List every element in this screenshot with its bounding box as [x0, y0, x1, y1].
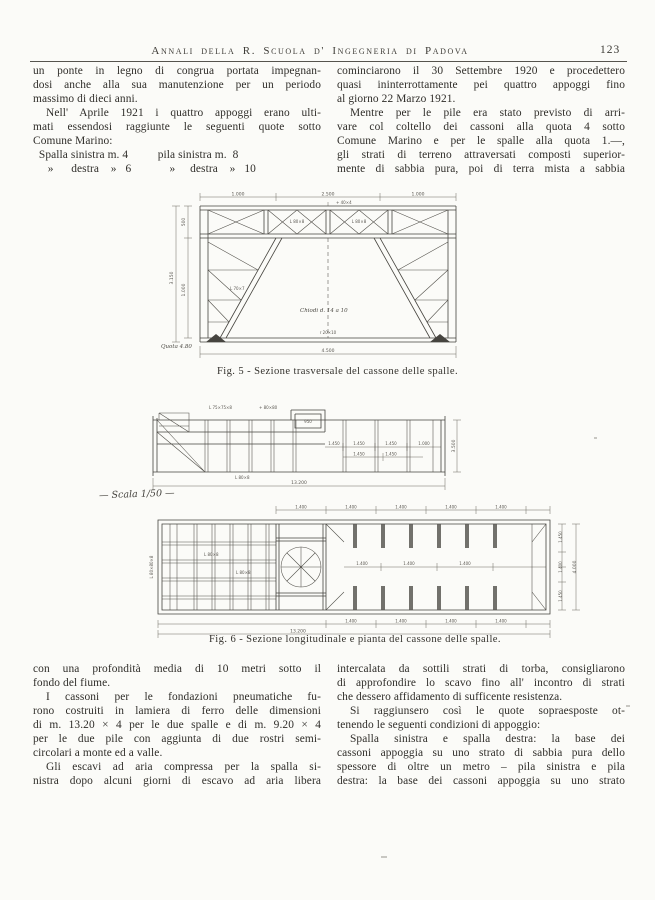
- text-line: vare col coltello dei cassoni alla quota…: [337, 120, 625, 134]
- text-line: mati essendosi raggiunte le seguenti quo…: [33, 120, 321, 134]
- page-number: 123: [600, 44, 630, 56]
- scan-artifact: [626, 705, 630, 707]
- dim-label: 4.500: [322, 348, 335, 354]
- text-line: di m. 13.20 × 4 per le due spalle e di m…: [33, 718, 321, 732]
- text-line: quasi ininterrottamente pei quattro appo…: [337, 78, 625, 92]
- rivet-note: Chiodi d. 14 a 10: [300, 308, 348, 314]
- fig6-section-drawing: 13.200 3.500 1.450 1.450 1.450 1.000 1.4…: [143, 398, 483, 498]
- text-line: al giorno 22 Marzo 1921.: [337, 92, 625, 106]
- dim-label: 3.150: [169, 271, 175, 284]
- text-line: Mentre per le pile era stato previsto di…: [337, 106, 625, 120]
- dim-label: 1.400: [295, 505, 307, 510]
- text-line: tenendo le seguenti condizioni di appogg…: [337, 718, 625, 732]
- text-line: gli strati di terreno attraversati compo…: [337, 148, 625, 162]
- column-top-left: un ponte in legno di congrua portata imp…: [33, 64, 321, 176]
- detail-label: L 80×8: [235, 475, 250, 480]
- text-line: spessore di oltre un metro – pila sinist…: [337, 760, 625, 774]
- dim-label: 4.000: [572, 560, 578, 573]
- text-line: dosi anche alla sua manutenzione per un …: [33, 78, 321, 92]
- text-line: con una profondità media di 10 metri sot…: [33, 662, 321, 676]
- fig6-plan-dimension-lines: [158, 506, 580, 638]
- header-rule: [30, 61, 627, 62]
- dim-label: 1.450: [353, 452, 365, 457]
- text-line: Comune Marino:: [33, 134, 321, 148]
- text-columns-top: un ponte in legno di congrua portata imp…: [33, 64, 625, 176]
- scale-note: — Scala 1/50 —: [99, 488, 175, 502]
- dim-label: 1.000: [232, 192, 245, 198]
- text-line: I cassoni per le fondazioni pneumatiche …: [33, 690, 321, 704]
- dim-label: 1.400: [403, 561, 415, 566]
- text-line: che dessero affidamento di sufficente re…: [337, 690, 625, 704]
- dim-label: 1.400: [445, 619, 457, 624]
- text-line: di approfondire lo scavo fino all' incon…: [337, 676, 625, 690]
- detail-label: L 70×7: [230, 286, 245, 291]
- text-line: nistra dopo alcuni giorni di escavo ad a…: [33, 774, 321, 788]
- column-bottom-right: intercalata da sottili strati di torba, …: [337, 662, 625, 788]
- text-line: per le due pile con aggiunta di due rost…: [33, 732, 321, 746]
- text-line: massimo di dieci anni.: [33, 92, 321, 106]
- dim-label: 1.400: [558, 561, 563, 573]
- detail-label: + 40×4: [336, 200, 352, 205]
- column-top-right: cominciarono il 30 Settembre 1920 e proc…: [337, 64, 625, 176]
- text-line: Gli escavi ad aria compressa per la spal…: [33, 760, 321, 774]
- text-line: Spalla sinistra e spalla destra: la base…: [337, 732, 625, 746]
- dim-label: 13.200: [291, 480, 307, 486]
- dim-label: 1.000: [412, 192, 425, 198]
- fig6-section-structure: [153, 410, 445, 476]
- dim-label: 2.500: [322, 192, 335, 198]
- fig5-dimension-labels: 1.000 2.500 1.000 3.150 500 1.000 4.500 …: [161, 192, 425, 355]
- detail-label: L 80×8: [352, 219, 367, 224]
- text-line: Si raggiunsero così le quote sopraespost…: [337, 704, 625, 718]
- dim-label: 1.450: [385, 452, 397, 457]
- text-line: circolari a monte ed a valle.: [33, 746, 321, 760]
- dim-label: 1.400: [495, 505, 507, 510]
- detail-label: L 80×8: [290, 219, 305, 224]
- detail-label: L 75×75×8: [209, 405, 232, 410]
- scan-artifact: [594, 437, 597, 439]
- text-line: un ponte in legno di congrua portata imp…: [33, 64, 321, 78]
- dim-label: 1.450: [328, 441, 340, 446]
- detail-label: r 20×10: [320, 330, 337, 335]
- dim-label: 1.400: [395, 505, 407, 510]
- dim-label: 1.450: [385, 441, 397, 446]
- text-line: rono costruiti in lamiera di ferro delle…: [33, 704, 321, 718]
- detail-label: L 80×8: [204, 552, 219, 557]
- fig6-plan-drawing: 1.400 1.400 1.400 1.400 1.400 1.450 1.40…: [148, 504, 618, 644]
- fig6-section-dimension-lines: [153, 420, 461, 490]
- dim-label: 1.400: [345, 619, 357, 624]
- fig5-caption: Fig. 5 - Sezione trasversale del cassone…: [30, 366, 645, 377]
- scan-artifact: [381, 856, 387, 858]
- dim-label: 1.450: [353, 441, 365, 446]
- fig5-dimension-lines: [172, 193, 456, 358]
- dim-label: 1.000: [418, 441, 430, 446]
- text-line: Nell' Aprile 1921 i quattro appoggi eran…: [33, 106, 321, 120]
- text-line: cominciarono il 30 Settembre 1920 e proc…: [337, 64, 625, 78]
- detail-label: + 80×80: [259, 405, 278, 410]
- dim-label: 1.400: [459, 561, 471, 566]
- dim-label: 1.400: [345, 505, 357, 510]
- fig6-caption: Fig. 6 - Sezione longitudinale e pianta …: [55, 634, 655, 645]
- dim-label: 1.450: [558, 590, 563, 602]
- dim-label: 1.400: [495, 619, 507, 624]
- dim-label: 1.400: [395, 619, 407, 624]
- dim-label: 1.400: [445, 505, 457, 510]
- text-line: intercalata da sottili strati di torba, …: [337, 662, 625, 676]
- journal-title: Annali della R. Scuola d' Ingegneria di …: [95, 45, 525, 57]
- dim-label: 500: [181, 218, 187, 227]
- fig6-section-labels: 13.200 3.500 1.450 1.450 1.450 1.000 1.4…: [209, 405, 457, 486]
- text-line: destra: la base dei cassoni appoggia su …: [337, 774, 625, 788]
- dim-label: 1.000: [181, 283, 187, 296]
- fig5-drawing: 1.000 2.500 1.000 3.150 500 1.000 4.500 …: [160, 190, 495, 365]
- text-line: fondo del fiume.: [33, 676, 321, 690]
- journal-page: Annali della R. Scuola d' Ingegneria di …: [0, 0, 655, 900]
- text-line: Spalla sinistra m. 4 pila sinistra m. 8: [33, 148, 321, 162]
- quota-note: Quota 4.80: [161, 344, 192, 350]
- detail-label: L 80×8: [236, 570, 251, 575]
- detail-label: 950: [304, 419, 312, 424]
- text-line: mente di sabbia pura, poi di terra mista…: [337, 162, 625, 176]
- dim-label: 3.500: [451, 439, 457, 452]
- column-bottom-left: con una profondità media di 10 metri sot…: [33, 662, 321, 788]
- text-line: cassoni appoggia su uno strato di sabbia…: [337, 746, 625, 760]
- detail-label: L 80×80×8: [149, 555, 154, 578]
- dim-label: 1.450: [558, 531, 563, 543]
- text-columns-bottom: con una profondità media di 10 metri sot…: [33, 662, 625, 788]
- text-line: Comune Marino e per le spalle alla quota…: [337, 134, 625, 148]
- text-line: » destra » 6 » destra » 10: [33, 162, 321, 176]
- dim-label: 1.400: [356, 561, 368, 566]
- fig5-truss-frame: [200, 206, 456, 342]
